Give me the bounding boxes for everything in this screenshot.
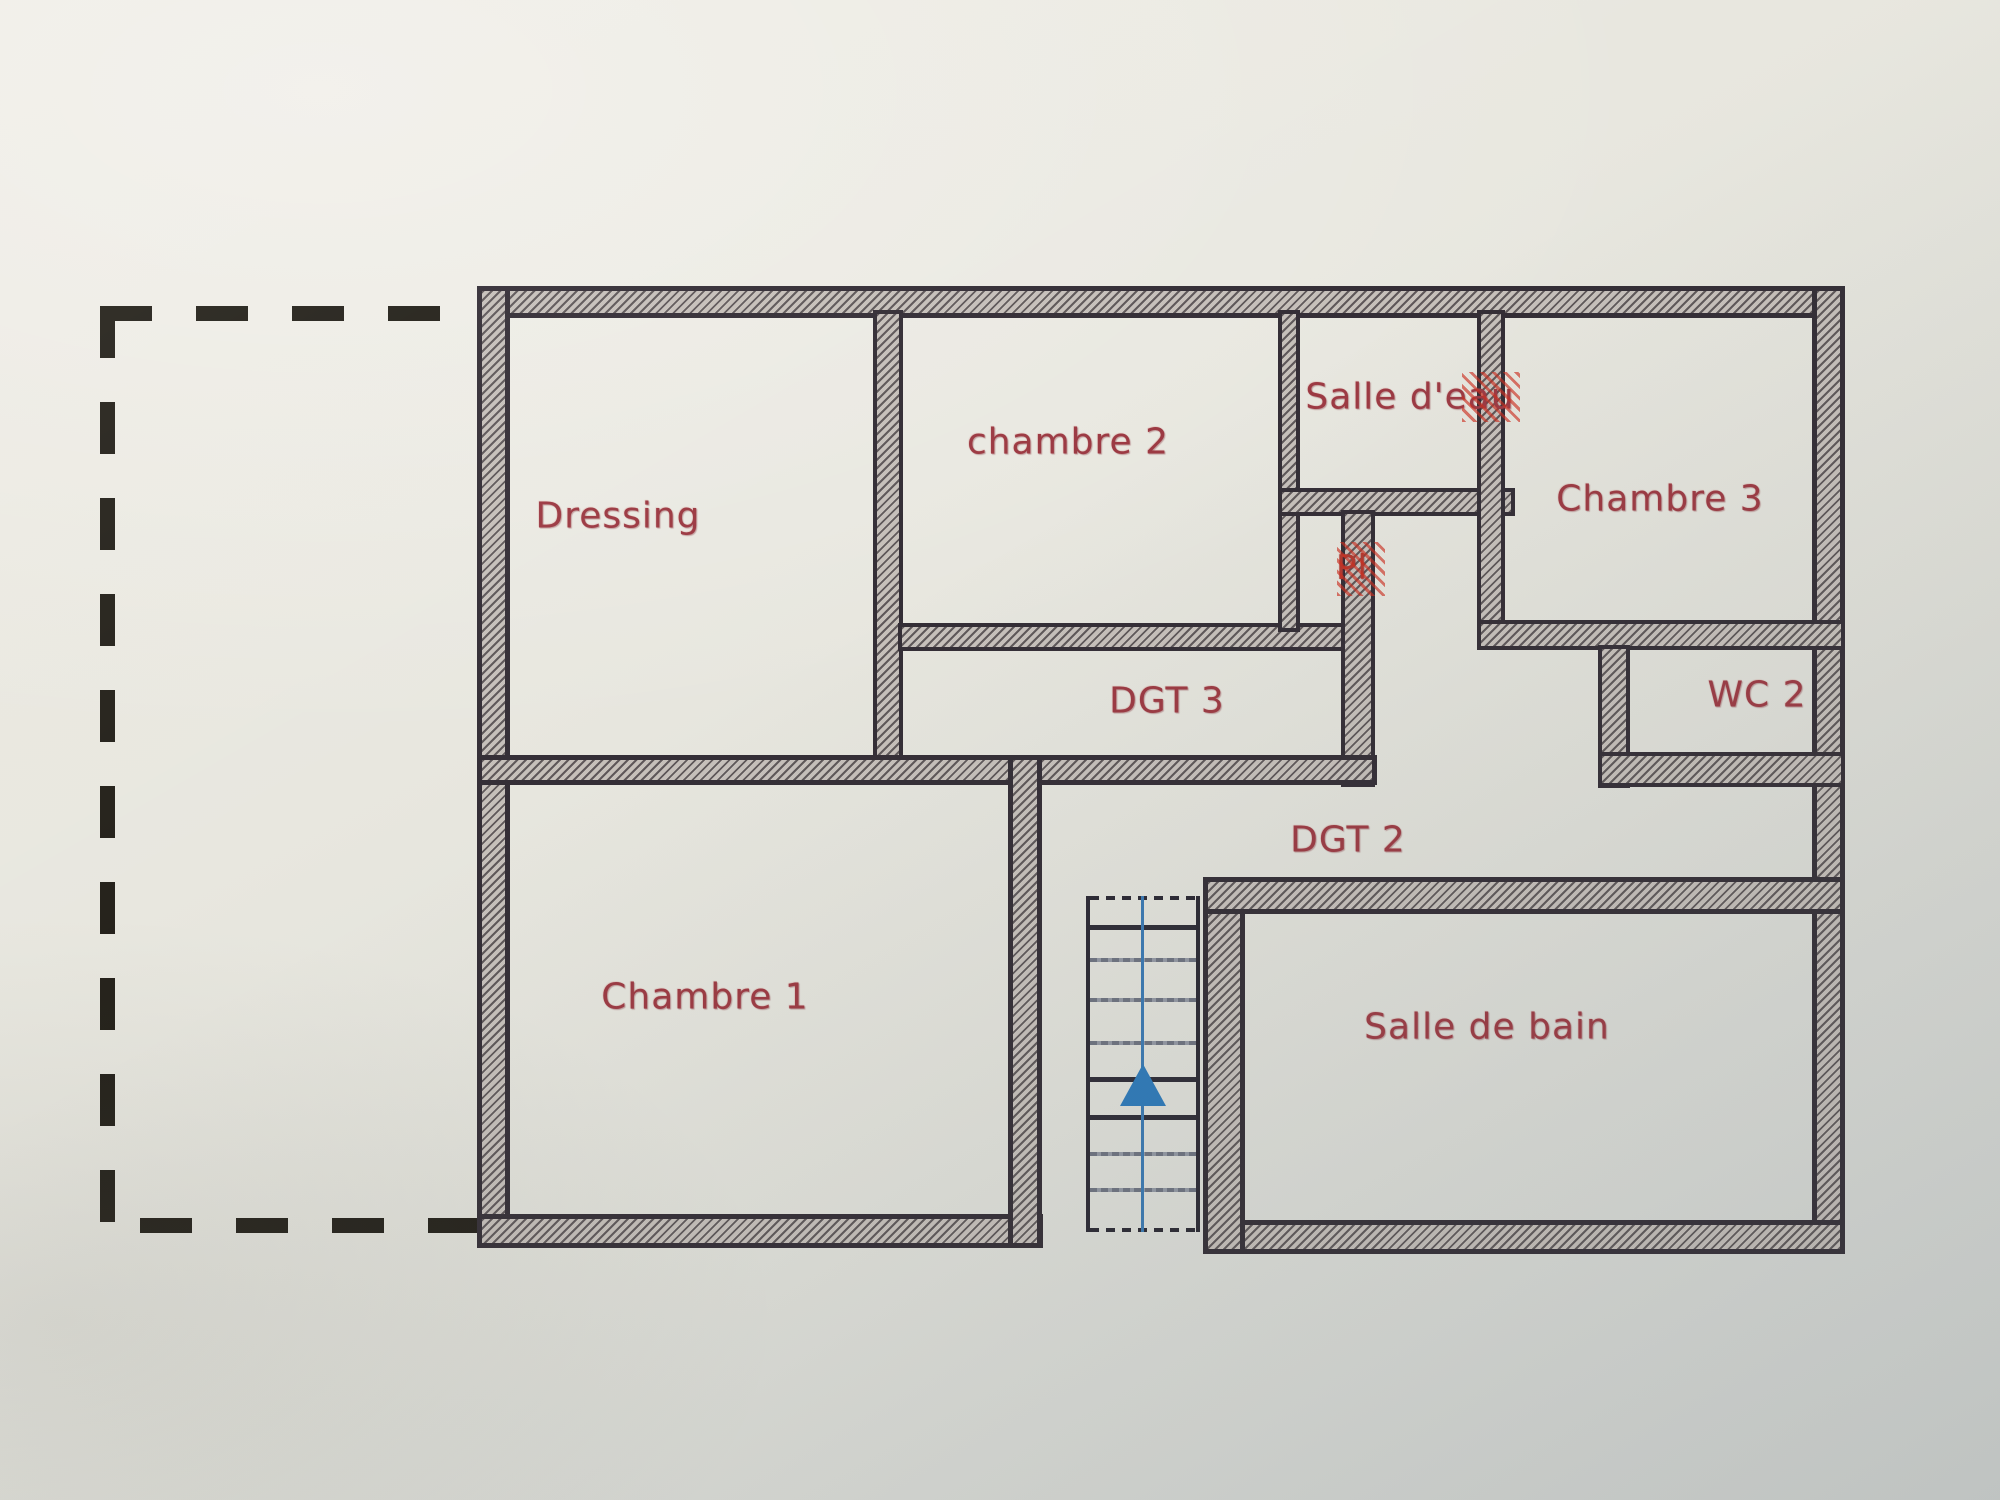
room-label-placard: Pl: [1336, 548, 1368, 588]
staircase: [1086, 896, 1200, 1232]
floor-plan: Dressing chambre 2 Salle d'eau Chambre 3…: [0, 0, 2000, 1500]
room-label-wc2: WC 2: [1707, 675, 1806, 716]
room-label-chambre3: Chambre 3: [1556, 479, 1763, 520]
room-label-chambre1: Chambre 1: [601, 977, 808, 1018]
room-label-salle-deau: Salle d'eau: [1305, 377, 1514, 418]
stairs-up-arrow-icon: [1120, 1064, 1166, 1106]
wall-chambre1-right: [1008, 755, 1042, 1248]
wall-bathroom-top: [1203, 877, 1845, 914]
room-label-salle-de-bain: Salle de bain: [1364, 1007, 1610, 1048]
wall-chambre3-bottom: [1477, 620, 1845, 650]
wall-wc2-bottom: [1598, 752, 1845, 787]
wall-exterior-top: [477, 286, 1845, 318]
wall-bathroom-bottom: [1203, 1220, 1845, 1254]
wall-dressing-chambre2: [873, 310, 903, 782]
dashed-outline-bottom: [100, 1218, 480, 1233]
room-label-dgt2: DGT 2: [1290, 820, 1406, 861]
wall-exterior-bottom-left: [477, 1214, 1043, 1248]
dashed-outline-top: [100, 306, 480, 321]
wall-corridor-bottom: [477, 755, 1377, 785]
wall-bathroom-left: [1203, 877, 1245, 1254]
wall-chambre3-left: [1477, 310, 1505, 647]
dashed-outline-left: [100, 306, 115, 1233]
room-label-dgt3: DGT 3: [1109, 681, 1225, 722]
room-label-dressing: Dressing: [535, 496, 700, 537]
room-label-chambre2: chambre 2: [967, 422, 1169, 463]
wall-chambre2-salledeau: [1278, 310, 1300, 632]
